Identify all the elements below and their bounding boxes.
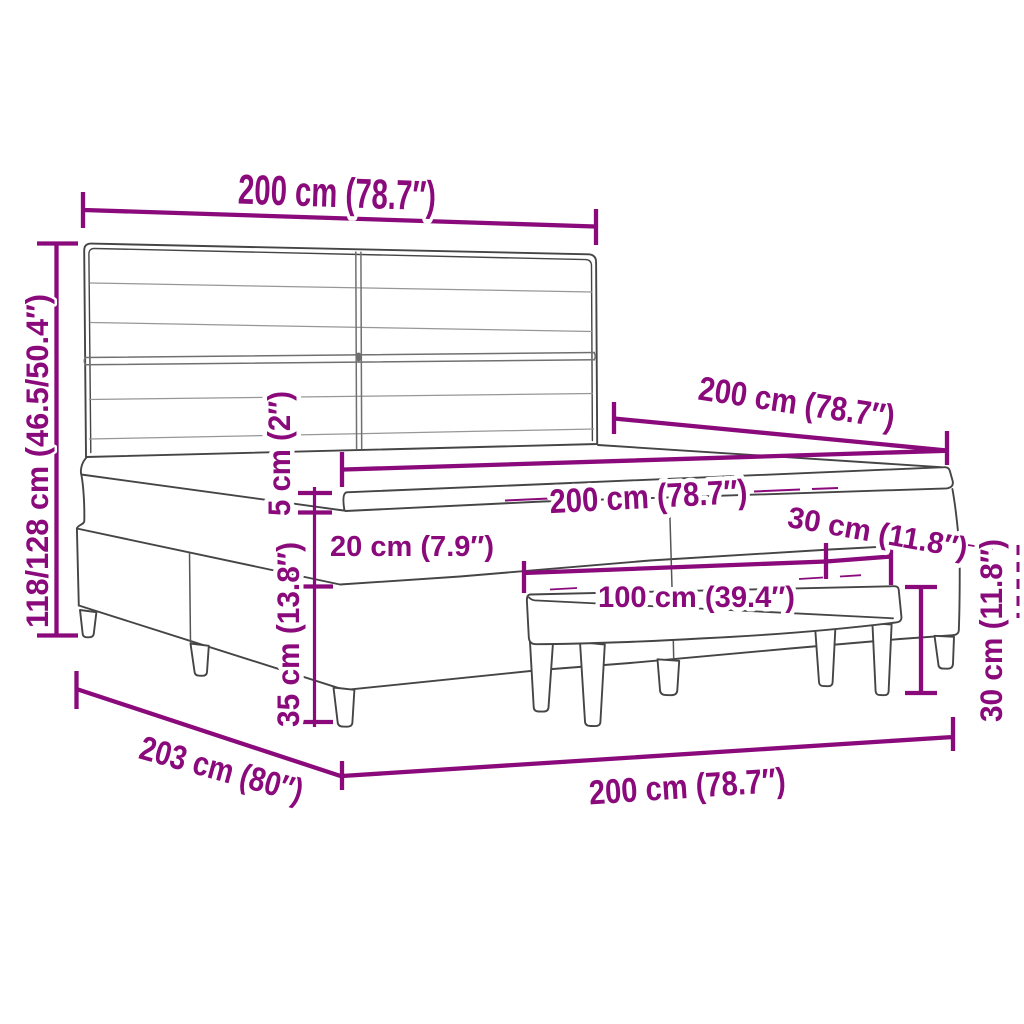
svg-text:118/128 cm (46.5/50.4″): 118/128 cm (46.5/50.4″) (19, 294, 55, 628)
svg-text:20 cm (7.9″): 20 cm (7.9″) (330, 531, 494, 563)
svg-text:200 cm (78.7″): 200 cm (78.7″) (237, 166, 437, 220)
svg-text:100 cm (39.4″): 100 cm (39.4″) (598, 581, 795, 614)
svg-text:35 cm (13.8″): 35 cm (13.8″) (270, 542, 306, 727)
svg-text:30 cm (11.8″): 30 cm (11.8″) (973, 539, 1009, 722)
svg-text:5 cm (2″): 5 cm (2″) (261, 391, 297, 516)
